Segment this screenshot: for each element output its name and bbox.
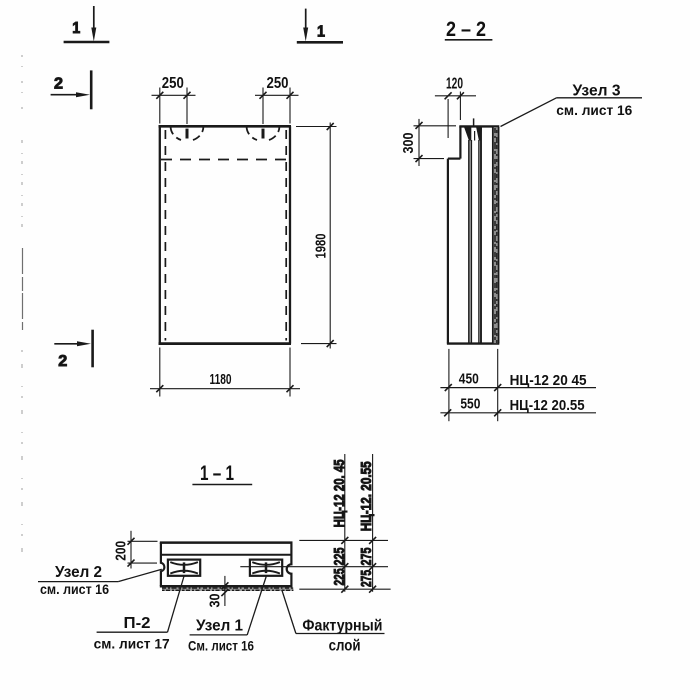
svg-text:250: 250 (267, 75, 289, 92)
svg-text:30: 30 (206, 594, 223, 608)
svg-text:Узел 2: Узел 2 (55, 564, 102, 581)
svg-text:НЦ-12 20.55: НЦ-12 20.55 (510, 397, 585, 414)
svg-text:450: 450 (459, 370, 479, 387)
svg-text:Фактурный: Фактурный (302, 618, 382, 635)
svg-text:см. лист 16: см. лист 16 (556, 102, 632, 118)
svg-text:225: 225 (331, 548, 348, 566)
svg-text:300: 300 (400, 133, 417, 154)
svg-text:П-2: П-2 (124, 615, 151, 632)
svg-text:225: 225 (331, 569, 348, 586)
svg-text:550: 550 (460, 396, 480, 413)
svg-text:слой: слой (329, 638, 361, 655)
svg-text:120: 120 (446, 75, 463, 92)
svg-text:275: 275 (358, 548, 375, 566)
svg-text:см. лист 16: см. лист 16 (40, 581, 109, 597)
svg-text:1 – 1: 1 – 1 (200, 462, 234, 485)
svg-text:1980: 1980 (313, 234, 330, 259)
svg-text:НЦ-12. 20.55: НЦ-12. 20.55 (358, 461, 375, 531)
svg-text:Узел 3: Узел 3 (573, 83, 621, 100)
svg-text:НЦ-12 20 45: НЦ-12 20 45 (510, 372, 587, 389)
svg-text:275: 275 (358, 570, 375, 587)
svg-text:2 – 2: 2 – 2 (446, 18, 486, 41)
svg-text:НЦ-12 20. 45: НЦ-12 20. 45 (331, 459, 348, 527)
svg-text:1180: 1180 (210, 371, 232, 388)
svg-text:2: 2 (58, 353, 67, 370)
svg-text:2: 2 (54, 76, 63, 93)
svg-text:См. лист 16: См. лист 16 (188, 638, 254, 654)
svg-text:1: 1 (317, 24, 325, 41)
svg-text:200: 200 (113, 541, 130, 561)
svg-text:Узел 1: Узел 1 (196, 618, 243, 635)
svg-text:1: 1 (72, 20, 80, 37)
svg-text:250: 250 (162, 75, 184, 92)
svg-text:см. лист 17: см. лист 17 (94, 635, 170, 651)
